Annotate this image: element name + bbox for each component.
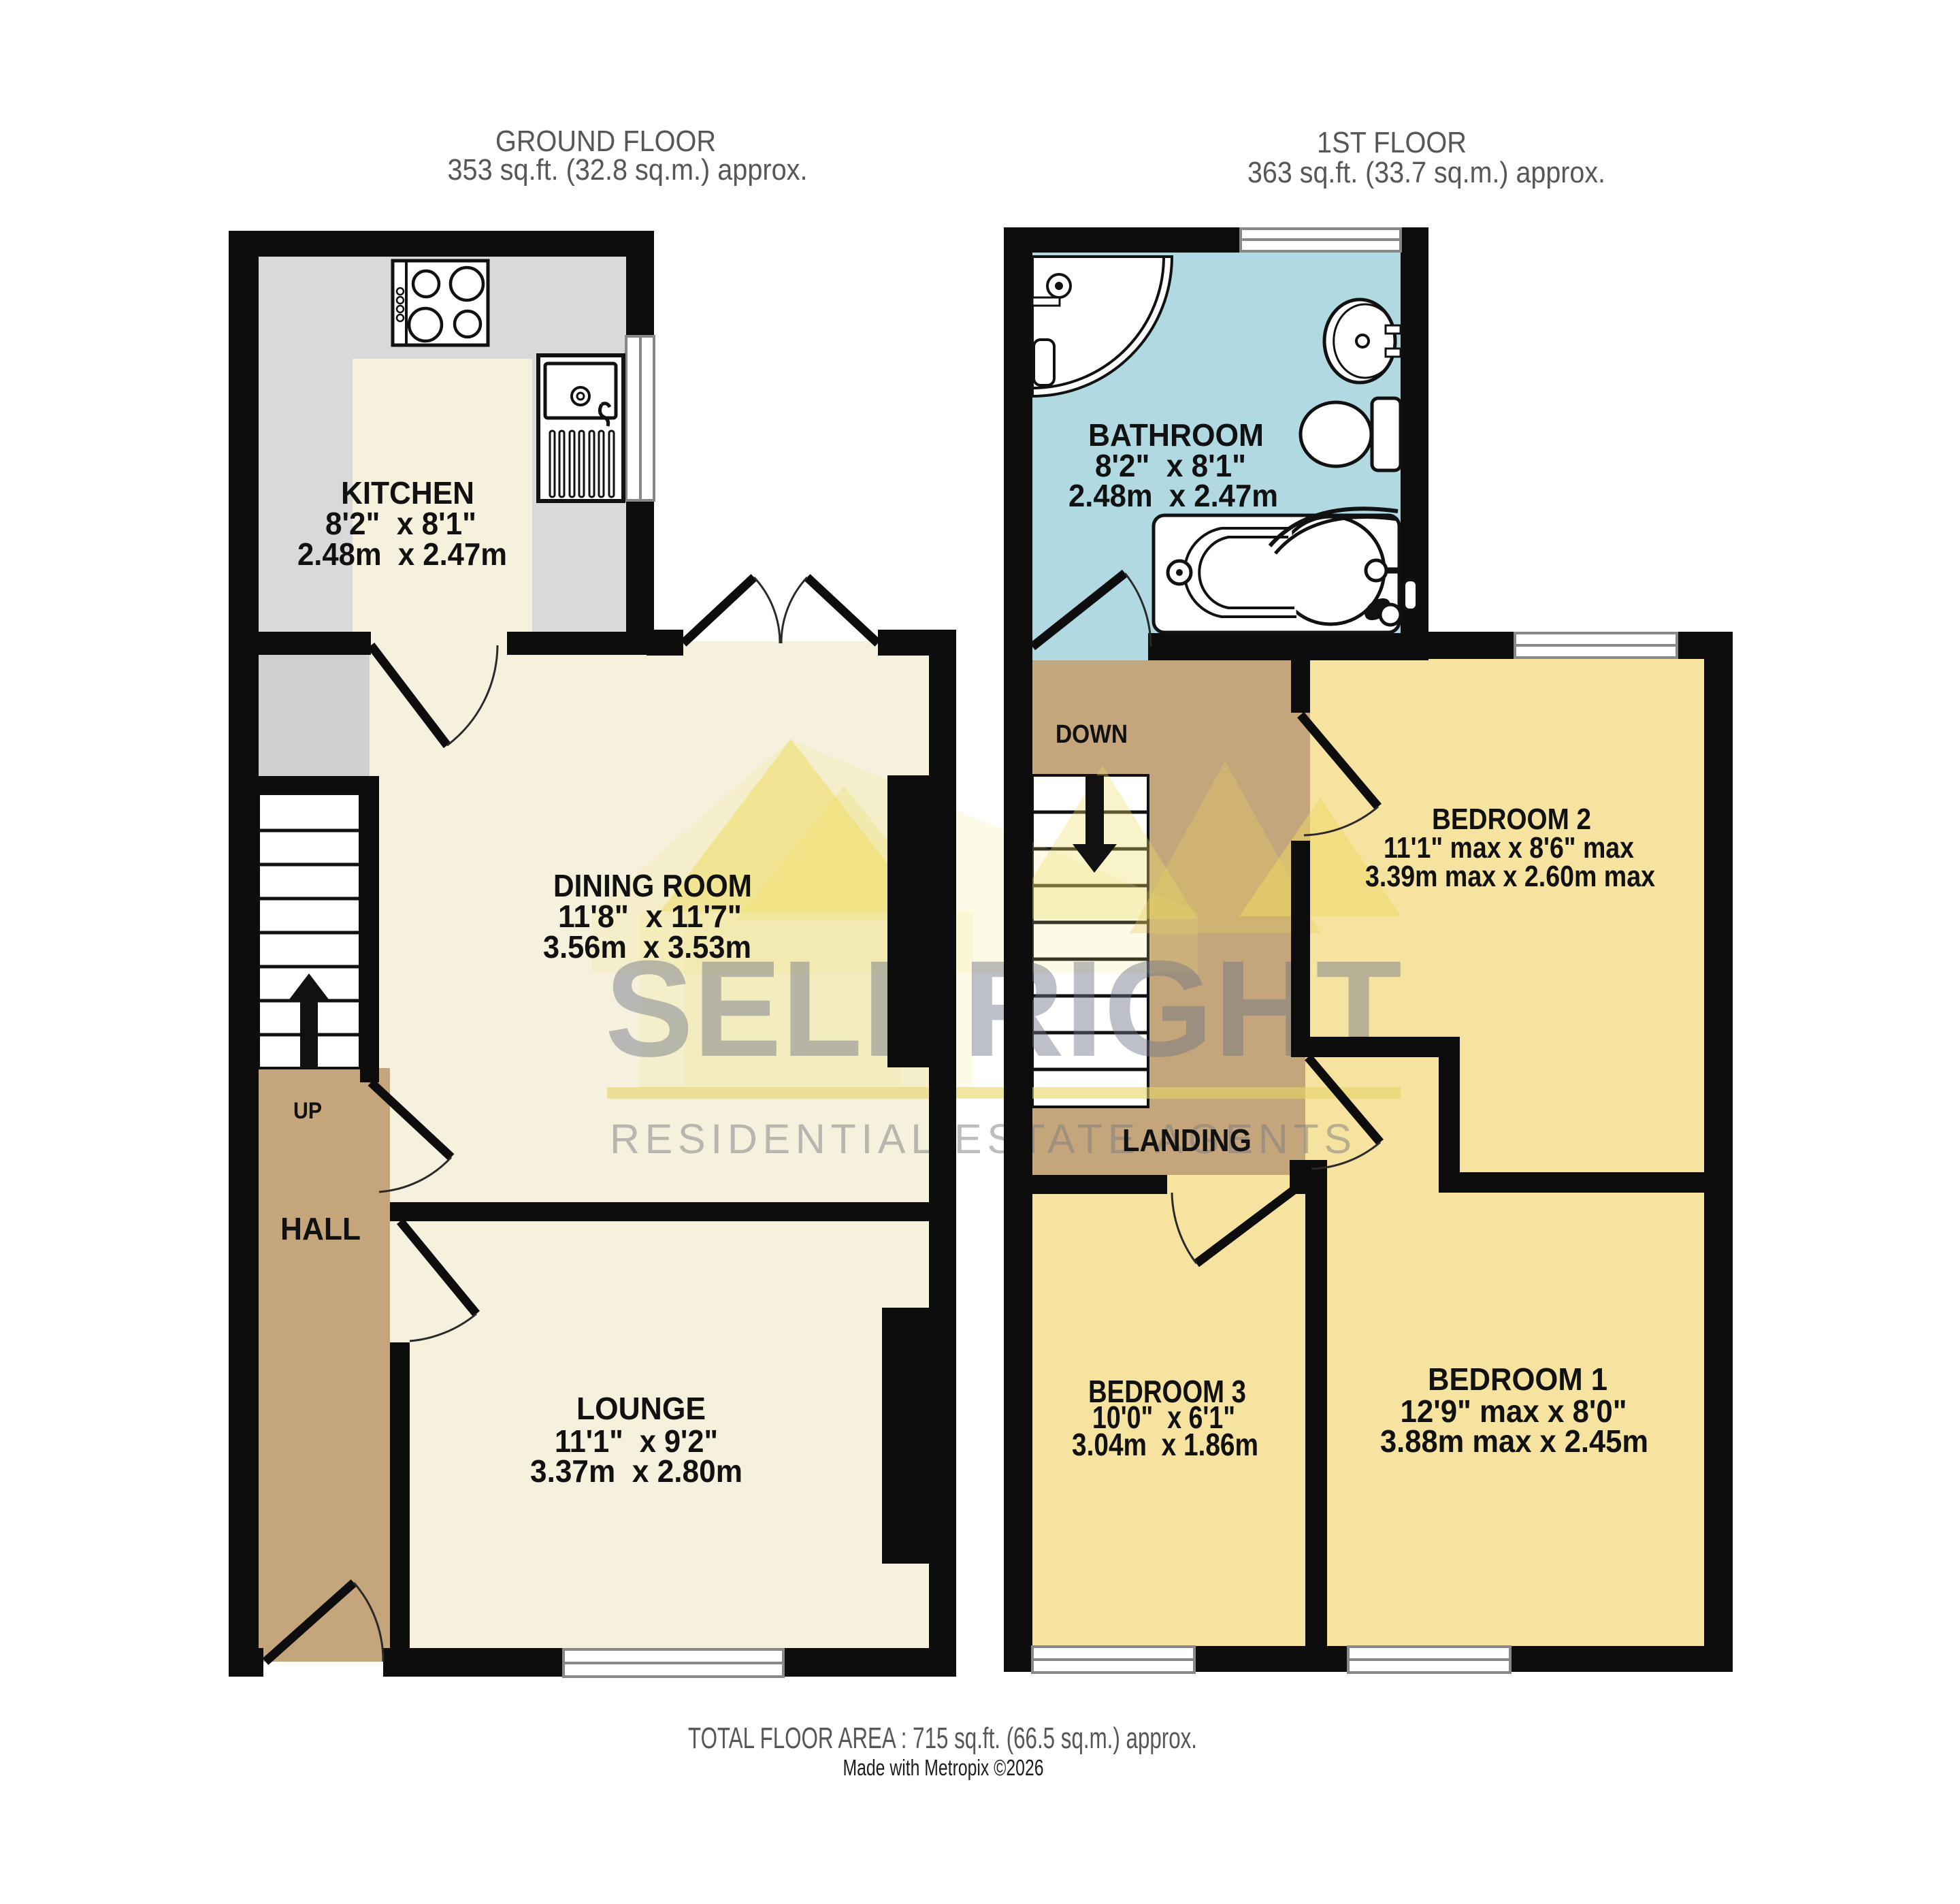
svg-text:2.48m x 2.47m: 2.48m x 2.47m	[297, 536, 507, 572]
svg-text:HALL: HALL	[280, 1211, 361, 1246]
svg-text:UP: UP	[293, 1098, 322, 1124]
svg-text:BEDROOM 1: BEDROOM 1	[1428, 1361, 1607, 1397]
svg-text:DOWN: DOWN	[1056, 720, 1128, 749]
svg-text:3.88m max x 2.45m: 3.88m max x 2.45m	[1380, 1423, 1648, 1459]
svg-text:3.04m x 1.86m: 3.04m x 1.86m	[1072, 1427, 1258, 1462]
svg-text:Made with Metropix ©2026: Made with Metropix ©2026	[843, 1755, 1044, 1780]
svg-text:353 sq.ft. (32.8 sq.m.) approx: 353 sq.ft. (32.8 sq.m.) approx.	[448, 153, 808, 187]
svg-text:3.56m x 3.53m: 3.56m x 3.53m	[543, 929, 751, 965]
svg-text:3.39m max x 2.60m max: 3.39m max x 2.60m max	[1365, 860, 1655, 893]
svg-text:363 sq.ft. (33.7 sq.m.) approx: 363 sq.ft. (33.7 sq.m.) approx.	[1247, 156, 1605, 189]
svg-text:3.37m x 2.80m: 3.37m x 2.80m	[530, 1453, 742, 1489]
svg-text:LOUNGE: LOUNGE	[576, 1391, 706, 1426]
svg-text:LANDING: LANDING	[1122, 1123, 1252, 1158]
svg-text:2.48m x 2.47m: 2.48m x 2.47m	[1068, 478, 1278, 513]
svg-text:TOTAL FLOOR AREA : 715 sq.ft.: TOTAL FLOOR AREA : 715 sq.ft. (66.5 sq.m…	[688, 1722, 1197, 1755]
svg-text:1ST FLOOR: 1ST FLOOR	[1317, 126, 1467, 159]
